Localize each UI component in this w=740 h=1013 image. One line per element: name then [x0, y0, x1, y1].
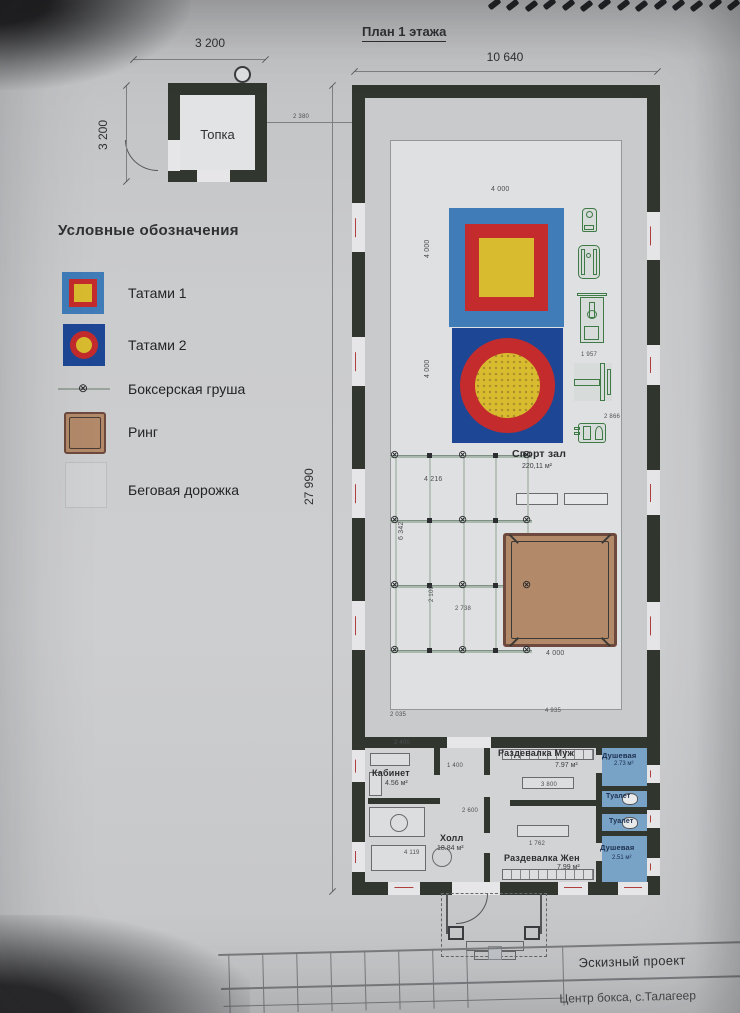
dimension-label: 2 600 — [462, 808, 478, 814]
room-label-sport-hall: Спорт зал — [512, 448, 566, 460]
dimension-label: 4 000 — [546, 650, 565, 657]
title-block: Эскизный проект Центр бокса, с.Талагеер — [218, 933, 740, 1013]
dimension-label: 2 100 — [429, 586, 435, 602]
spiral-ring-icon — [690, 0, 704, 12]
dimension-label: 4 000 — [424, 359, 431, 378]
dimension-label: 4 935 — [545, 708, 561, 714]
dimension-label: 2 400 — [394, 740, 410, 746]
spiral-ring-icon — [635, 0, 649, 12]
room-area: 18.84 м² — [437, 845, 464, 852]
punching-bag-icon: ⊗ — [458, 645, 467, 655]
room-area: 7.99 м² — [557, 864, 580, 871]
dimension-label: 2 738 — [455, 606, 471, 612]
room-label: Туалет — [609, 818, 634, 825]
dimension-label: 3 800 — [541, 782, 557, 788]
spiral-ring-icon — [543, 0, 557, 10]
spiral-binding — [0, 0, 740, 20]
punching-bag-icon: ⊗ — [458, 580, 467, 590]
room-label: Раздевалка Жен — [504, 853, 580, 863]
room-label: Кабинет — [372, 768, 410, 778]
punching-bag-icon: ⊗ — [522, 645, 531, 655]
room-label: Раздевалка Муж — [498, 748, 574, 758]
punching-bag-icon: ⊗ — [390, 645, 399, 655]
punching-bag-icon: ⊗ — [458, 450, 467, 460]
room-label: Душевая — [600, 843, 635, 852]
room-label: Душевая — [602, 751, 637, 760]
project-type: Эскизный проект — [578, 953, 686, 971]
dimension-label: 4 000 — [424, 239, 431, 258]
spiral-ring-icon — [488, 0, 502, 10]
dimension-label: 1 400 — [447, 763, 463, 769]
room-area: 2.73 м² — [614, 761, 633, 767]
room-area: 7.97 м² — [555, 762, 578, 769]
room-area: 4.56 м² — [385, 780, 408, 787]
spiral-ring-icon — [561, 0, 575, 11]
dimension-label: 4 000 — [491, 186, 510, 193]
room-label: Туалет — [606, 793, 631, 800]
punching-bag-icon: ⊗ — [458, 515, 467, 525]
spiral-ring-icon — [506, 0, 520, 11]
punching-bag-icon: ⊗ — [522, 580, 531, 590]
dimension-layer: 2 3804 0004 0004 0001 9572 8664 2166 342… — [0, 0, 740, 1013]
spiral-ring-icon — [598, 0, 612, 10]
dimension-label: 1 957 — [581, 352, 597, 358]
project-object: Центр бокса, с.Талагеер — [559, 988, 696, 1005]
dimension-label: 2 380 — [293, 114, 309, 120]
spiral-ring-icon — [727, 0, 740, 11]
spiral-ring-icon — [672, 0, 686, 11]
room-label: Холл — [440, 833, 463, 843]
spiral-ring-icon — [524, 0, 538, 12]
dimension-label: 4 216 — [424, 476, 443, 483]
dimension-label: 6 342 — [398, 521, 405, 540]
dimension-label: 1 762 — [529, 841, 545, 847]
dimension-label: 2 035 — [390, 712, 406, 718]
dimension-label: 2 866 — [604, 414, 620, 420]
dimension-label: 4 119 — [404, 850, 420, 856]
spiral-ring-icon — [653, 0, 667, 10]
punching-bag-icon: ⊗ — [390, 450, 399, 460]
spiral-ring-icon — [616, 0, 630, 11]
punching-bag-icon: ⊗ — [522, 515, 531, 525]
spiral-ring-icon — [580, 0, 594, 12]
notebook-photo: 3 200 3 200 Топка Условные обозначения Т… — [0, 0, 740, 1013]
room-area-sport-hall: 220,11 м² — [522, 463, 552, 470]
punching-bag-icon: ⊗ — [390, 580, 399, 590]
room-area: 2.51 м² — [612, 855, 631, 861]
spiral-ring-icon — [708, 0, 722, 10]
